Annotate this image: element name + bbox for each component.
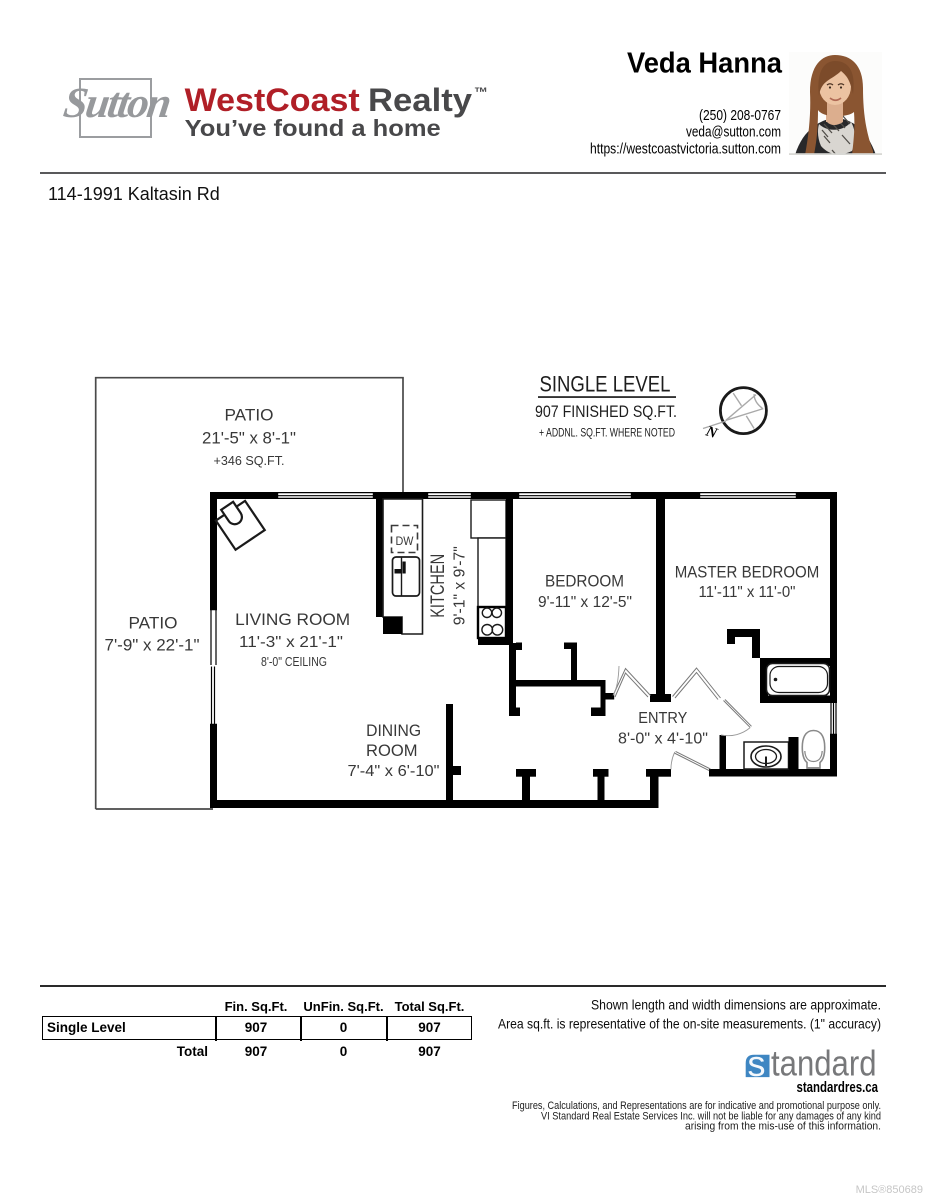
svg-text:BEDROOM: BEDROOM xyxy=(545,573,624,591)
svg-text:SINGLE LEVEL: SINGLE LEVEL xyxy=(540,372,671,397)
svg-text:DW: DW xyxy=(396,536,414,548)
svg-text:9'-11" x 12'-5": 9'-11" x 12'-5" xyxy=(538,594,632,611)
svg-text:7'-9" x 22'-1": 7'-9" x 22'-1" xyxy=(105,636,200,655)
svg-text:standardres.ca: standardres.ca xyxy=(797,1080,879,1096)
svg-text:LIVING ROOM: LIVING ROOM xyxy=(235,610,350,629)
svg-text:9'-1" x 9'-7": 9'-1" x 9'-7" xyxy=(452,546,469,625)
svg-text:7'-4" x 6'-10": 7'-4" x 6'-10" xyxy=(348,763,440,780)
svg-text:907 FINISHED SQ.FT.: 907 FINISHED SQ.FT. xyxy=(535,402,677,421)
svg-text:Area sq.ft. is representative: Area sq.ft. is representative of the on-… xyxy=(498,1017,881,1032)
svg-text:DINING: DINING xyxy=(366,722,421,740)
svg-text:tandard: tandard xyxy=(771,1043,877,1084)
svg-text:+346 SQ.FT.: +346 SQ.FT. xyxy=(214,454,285,468)
svg-text:arising from the mis-use of th: arising from the mis-use of this informa… xyxy=(685,1121,881,1133)
svg-text:8'-0" CEILING: 8'-0" CEILING xyxy=(261,655,327,669)
svg-text:21'-5" x 8'-1": 21'-5" x 8'-1" xyxy=(202,429,296,448)
svg-text:MASTER BEDROOM: MASTER BEDROOM xyxy=(675,564,820,582)
svg-text:11'-3" x 21'-1": 11'-3" x 21'-1" xyxy=(239,634,343,651)
svg-text:11'-11" x 11'-0": 11'-11" x 11'-0" xyxy=(699,584,796,601)
svg-text:N: N xyxy=(703,423,720,442)
svg-text:KITCHEN: KITCHEN xyxy=(428,554,449,618)
svg-text:Shown length and width dimensi: Shown length and width dimensions are ap… xyxy=(591,998,881,1013)
svg-text:PATIO: PATIO xyxy=(225,406,274,425)
svg-text:PATIO: PATIO xyxy=(129,614,178,633)
svg-text:s: s xyxy=(748,1043,766,1084)
svg-text:ENTRY: ENTRY xyxy=(638,710,687,727)
svg-text:ROOM: ROOM xyxy=(366,742,418,760)
svg-text:+ ADDNL. SQ.FT. WHERE NOTED: + ADDNL. SQ.FT. WHERE NOTED xyxy=(539,426,675,440)
svg-text:8'-0" x 4'-10": 8'-0" x 4'-10" xyxy=(618,731,708,748)
